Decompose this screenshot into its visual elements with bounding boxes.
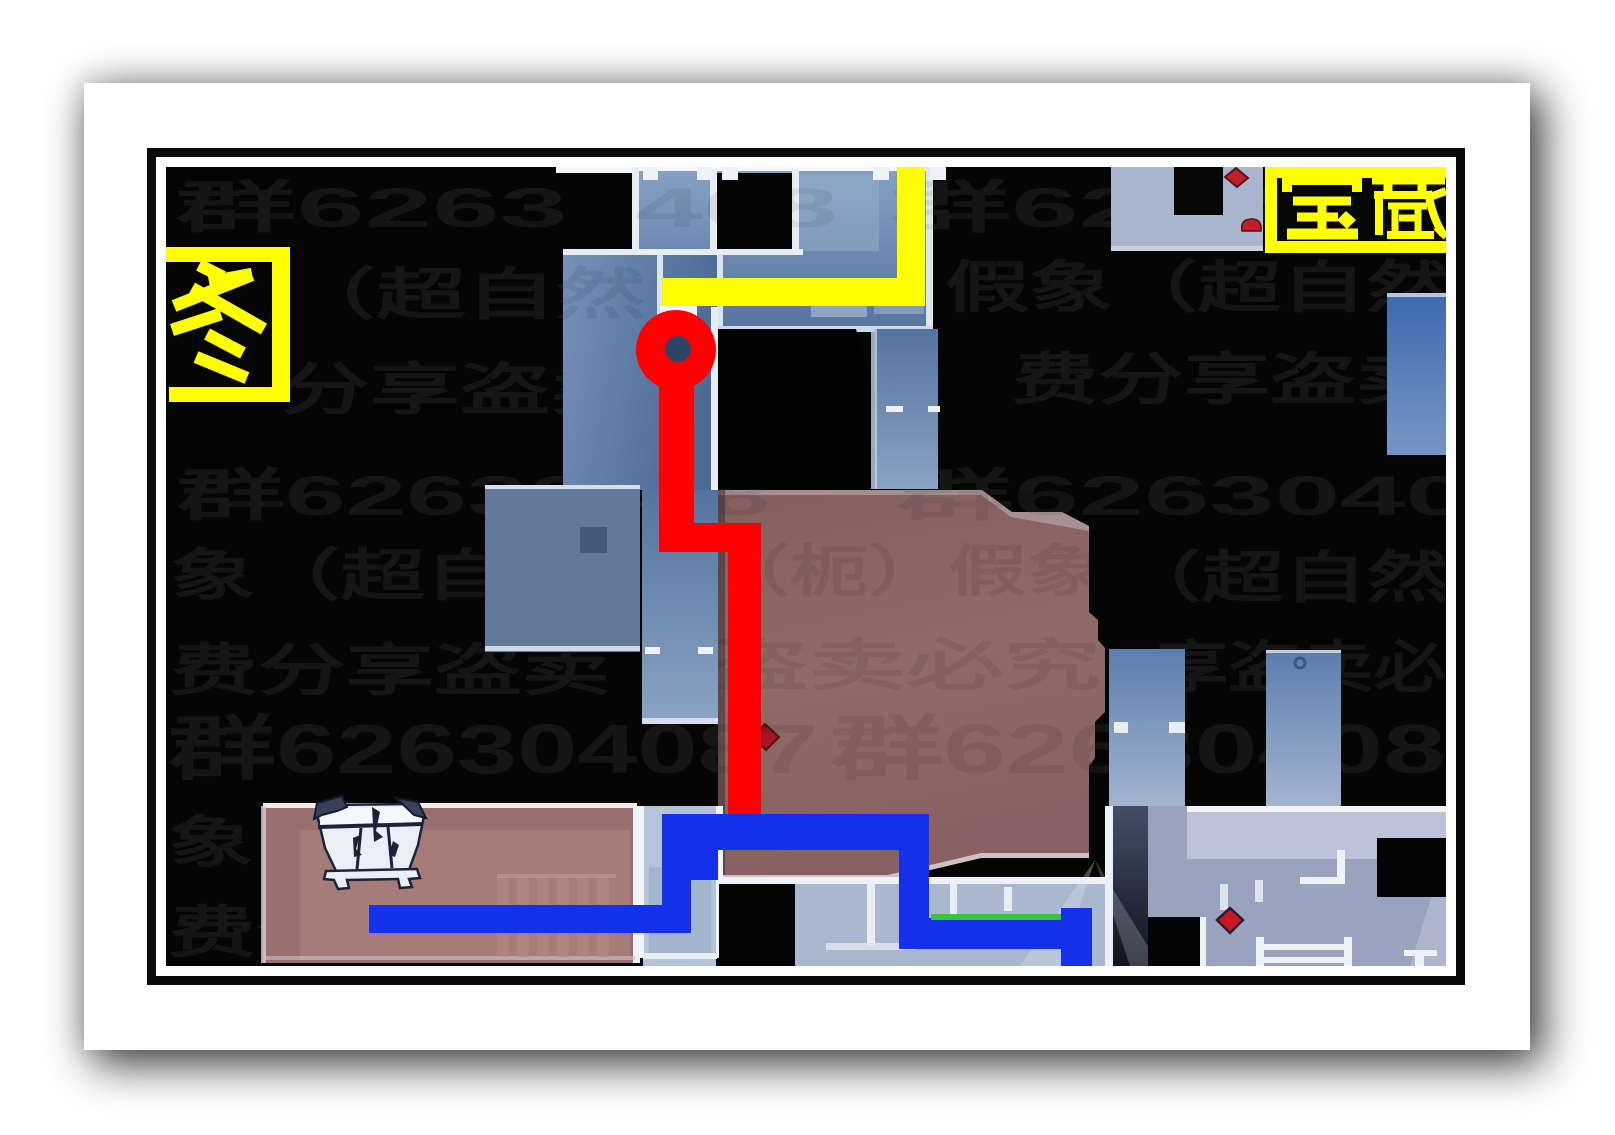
- svg-text:（枙）假象: （枙）假象: [711, 540, 1106, 603]
- svg-text:（超自然: （超自然: [1119, 546, 1446, 609]
- svg-text:盗卖必究: 盗卖必究: [711, 634, 1101, 697]
- svg-text:费分享盗卖: 费分享盗卖: [1012, 348, 1442, 411]
- svg-text:假象（超自然: 假象（超自然: [945, 256, 1446, 319]
